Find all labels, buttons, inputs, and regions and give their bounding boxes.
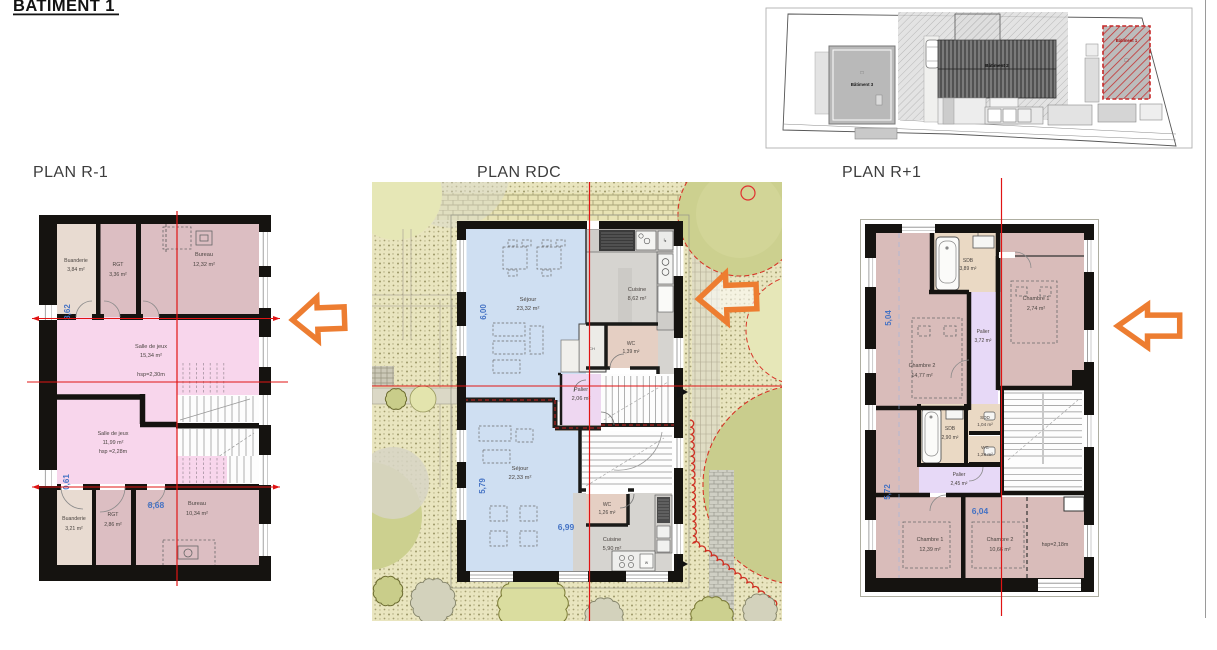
svg-text:6,04: 6,04: [972, 506, 989, 516]
svg-text:12,32 m²: 12,32 m²: [193, 262, 215, 268]
svg-text:Palier: Palier: [953, 472, 966, 478]
svg-text:□: □: [1125, 58, 1129, 64]
svg-text:Chambre 1: Chambre 1: [917, 537, 944, 543]
svg-text:3,84 m²: 3,84 m²: [67, 267, 85, 273]
svg-text:Chambre 1: Chambre 1: [1023, 296, 1050, 302]
svg-text:Chambre 2: Chambre 2: [987, 537, 1014, 543]
svg-text:2,06 m²: 2,06 m²: [572, 396, 591, 402]
svg-text:WC: WC: [627, 341, 636, 347]
svg-text:PLAN RDC: PLAN RDC: [477, 164, 561, 181]
svg-text:3,21 m²: 3,21 m²: [65, 526, 83, 532]
svg-text:14,77 m²: 14,77 m²: [911, 373, 932, 379]
svg-text:6,99: 6,99: [558, 522, 575, 532]
svg-text:6,00: 6,00: [479, 304, 488, 320]
svg-text:Séjour: Séjour: [520, 297, 537, 303]
svg-text:11,99 m²: 11,99 m²: [103, 440, 124, 446]
svg-text:Salle de jeux: Salle de jeux: [135, 344, 167, 350]
svg-text:Cuisine: Cuisine: [628, 287, 646, 293]
svg-text:5,72: 5,72: [883, 484, 892, 500]
svg-text:2,74 m²: 2,74 m²: [1027, 306, 1045, 312]
svg-text:1,28 m²: 1,28 m²: [977, 452, 993, 457]
svg-text:15,34 m²: 15,34 m²: [140, 353, 162, 359]
svg-text:1,04 m²: 1,04 m²: [977, 422, 993, 427]
svg-text:1,39 m²: 1,39 m²: [623, 349, 640, 355]
svg-text:2,90 m²: 2,90 m²: [942, 435, 959, 441]
svg-text:3,62: 3,62: [63, 304, 72, 320]
svg-text:SDD: SDD: [980, 415, 990, 420]
svg-text:WC: WC: [603, 502, 612, 508]
svg-text:22,33 m²: 22,33 m²: [509, 475, 532, 481]
svg-text:1,26 m²: 1,26 m²: [599, 510, 616, 516]
svg-text:Palier: Palier: [977, 329, 990, 335]
svg-text:Salle de jeux: Salle de jeux: [98, 431, 129, 437]
svg-text:2,45 m²: 2,45 m²: [951, 481, 968, 487]
svg-text:Bâtiment 2: Bâtiment 2: [985, 63, 1009, 68]
svg-text:3,89 m²: 3,89 m²: [960, 266, 977, 272]
svg-text:8,62 m²: 8,62 m²: [628, 296, 647, 302]
svg-text:2,86 m²: 2,86 m²: [104, 522, 122, 528]
svg-text:Palier: Palier: [574, 387, 588, 393]
svg-text:Bâtiment 3: Bâtiment 3: [851, 82, 874, 87]
svg-text:5,90 m²: 5,90 m²: [603, 546, 622, 552]
svg-text:5,04: 5,04: [884, 310, 893, 326]
svg-text:Buanderie: Buanderie: [64, 258, 88, 264]
svg-text:PLAN R+1: PLAN R+1: [842, 164, 921, 181]
svg-text:10,66 m²: 10,66 m²: [989, 547, 1010, 553]
svg-text:↳: ↳: [663, 238, 667, 244]
svg-text:RGT: RGT: [113, 262, 125, 268]
svg-text:□: □: [860, 70, 863, 76]
svg-text:Bâtiment 1: Bâtiment 1: [1116, 38, 1138, 43]
svg-text:SDB: SDB: [945, 426, 956, 432]
svg-text:23,32 m²: 23,32 m²: [517, 306, 540, 312]
svg-text:PLAN R-1: PLAN R-1: [33, 164, 108, 181]
svg-text:hsp =2,28m: hsp =2,28m: [99, 449, 128, 455]
svg-text:Chambre 2: Chambre 2: [909, 363, 936, 369]
svg-text:12,39 m²: 12,39 m²: [919, 547, 940, 553]
svg-text:WC: WC: [981, 445, 989, 450]
svg-text:hsp=2,18m: hsp=2,18m: [1042, 542, 1069, 548]
svg-text:3,72 m²: 3,72 m²: [975, 338, 992, 344]
svg-text:hsp=2,30m: hsp=2,30m: [137, 372, 165, 378]
svg-text:RGT: RGT: [108, 512, 120, 518]
svg-text:3,36 m²: 3,36 m²: [109, 272, 127, 278]
svg-text:Buanderie: Buanderie: [62, 516, 86, 522]
svg-text:SDB: SDB: [963, 258, 974, 264]
svg-text:8,68: 8,68: [148, 500, 165, 510]
svg-text:10,34 m²: 10,34 m²: [186, 511, 208, 517]
svg-text:5,79: 5,79: [478, 478, 487, 494]
svg-text:Séjour: Séjour: [512, 466, 529, 472]
svg-text:Bureau: Bureau: [188, 501, 206, 507]
svg-text:Bureau: Bureau: [195, 252, 213, 258]
svg-text:BATIMENT 1: BATIMENT 1: [13, 0, 115, 15]
svg-text:Cuisine: Cuisine: [603, 537, 621, 543]
